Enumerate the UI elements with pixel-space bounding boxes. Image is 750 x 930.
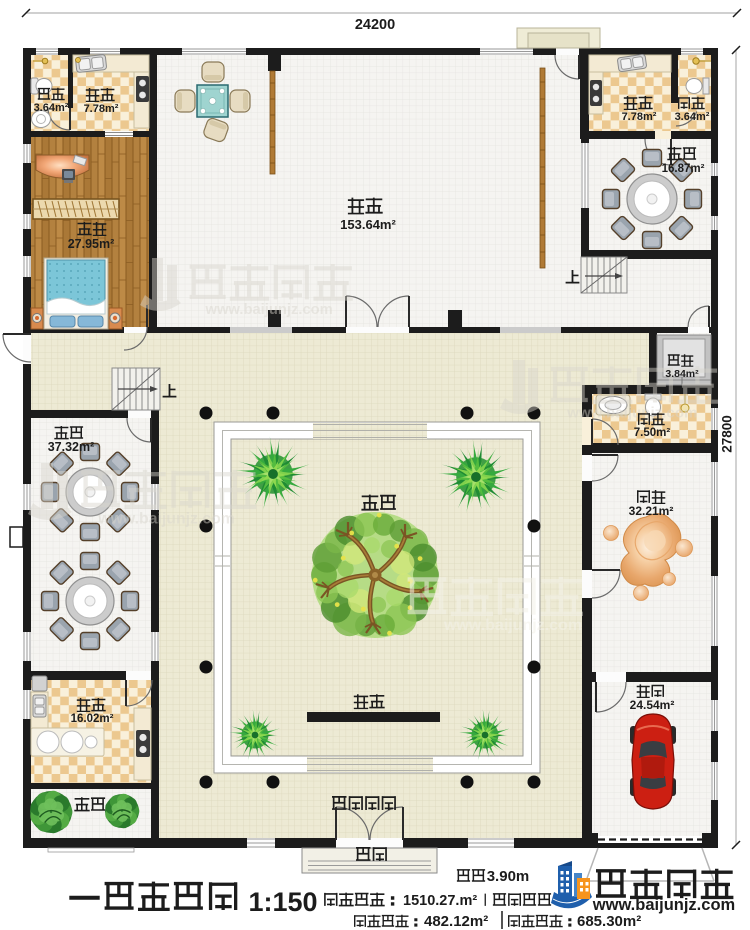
svg-text:7.78m²: 7.78m² (622, 111, 657, 123)
svg-text:www.baijunjz.com: www.baijunjz.com (566, 405, 697, 422)
svg-text:www.baijunjz.com: www.baijunjz.com (97, 510, 235, 527)
svg-text:16.87m²: 16.87m² (662, 163, 705, 175)
svg-text:1510.27.m²: 1510.27.m² (403, 893, 477, 909)
svg-text:3.84m²: 3.84m² (665, 368, 699, 380)
svg-text:27800: 27800 (720, 415, 735, 453)
svg-text:24.54m²: 24.54m² (630, 698, 675, 712)
svg-text:482.12m²: 482.12m² (424, 913, 488, 930)
svg-text:153.64m²: 153.64m² (340, 217, 396, 232)
svg-text:685.30m²: 685.30m² (577, 913, 641, 930)
svg-text:7.50m²: 7.50m² (634, 427, 671, 439)
svg-text:www.baijunjz.com: www.baijunjz.com (592, 896, 735, 914)
svg-text:27.95m²: 27.95m² (68, 237, 115, 251)
svg-text:7.78m²: 7.78m² (84, 103, 119, 115)
svg-text:16.02m²: 16.02m² (71, 713, 114, 725)
svg-text:3.64m²: 3.64m² (675, 111, 710, 123)
svg-text:32.21m²: 32.21m² (629, 504, 674, 518)
svg-text:www.baijunjz.com: www.baijunjz.com (443, 617, 582, 634)
svg-text:www.baijunjz.com: www.baijunjz.com (204, 302, 332, 318)
svg-text:3.90m: 3.90m (487, 868, 530, 885)
svg-text:37.32m²: 37.32m² (48, 440, 95, 454)
svg-text:3.64m²: 3.64m² (34, 102, 69, 114)
svg-text:1:150: 1:150 (248, 887, 317, 917)
svg-text:24200: 24200 (355, 17, 395, 33)
